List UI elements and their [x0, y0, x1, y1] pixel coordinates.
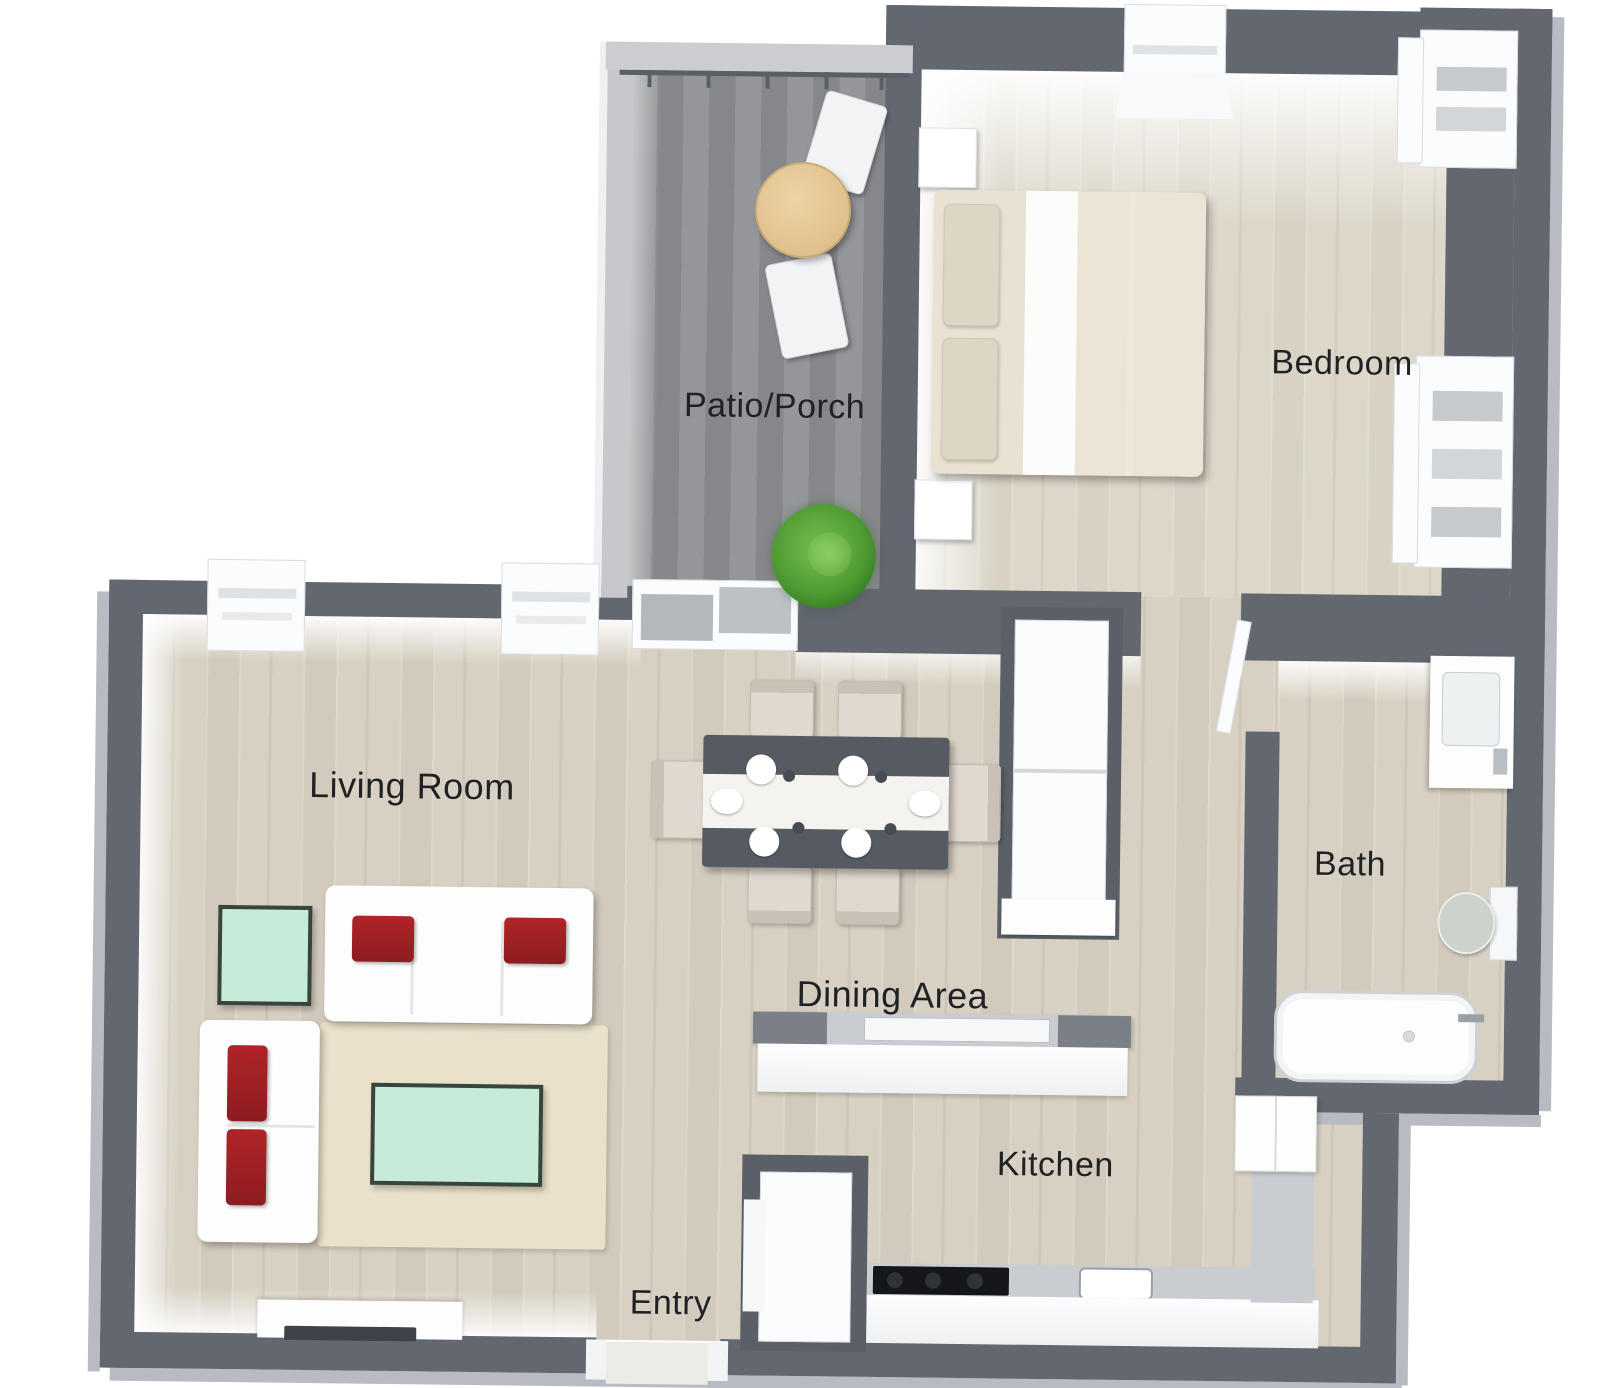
nightstand-top [918, 127, 977, 188]
nightstand-bottom [914, 479, 973, 540]
sofa-cushion-seam [227, 1124, 315, 1128]
cooktop [873, 1266, 1009, 1296]
room-label-dining: Dining Area [796, 973, 988, 1017]
cooktop-burner [887, 1272, 903, 1288]
dining-chair [650, 760, 709, 839]
entry-closet-door [758, 1172, 852, 1343]
bedroom-window-sill [1115, 72, 1234, 119]
kitchen-counter-right [1251, 1171, 1315, 1304]
dining-chair [747, 865, 812, 924]
wall-closet-divider [1444, 168, 1514, 359]
railing-post [706, 71, 710, 88]
cooktop-burner [967, 1273, 983, 1289]
bed [931, 190, 1206, 477]
closet-organizer-bottom [1392, 363, 1420, 563]
bath-sink [1441, 672, 1500, 747]
bathtub-drain [1403, 1030, 1415, 1042]
bed-pillow [941, 338, 998, 461]
fridge-door-seam [1274, 1097, 1277, 1171]
bed-duvet [1075, 191, 1206, 477]
railing-post [647, 70, 651, 87]
wall-bath-north [1241, 593, 1546, 664]
kitchen-bar-cap-left [753, 1011, 827, 1044]
bath-faucet [1493, 748, 1507, 774]
kitchen-bar-cap-right [1058, 1015, 1131, 1048]
kitchen-sink [1079, 1267, 1153, 1300]
bath-vanity [1429, 656, 1515, 789]
plate [746, 754, 776, 784]
room-label-living: Living Room [309, 764, 515, 809]
dining-chair [835, 866, 900, 925]
room-label-entry: Entry [629, 1283, 711, 1323]
red-pillow [504, 917, 567, 964]
cooktop-burner [925, 1273, 941, 1289]
window-sill-line [1133, 45, 1217, 55]
patio-railing-bar [606, 42, 913, 74]
closet-shelf [1436, 107, 1506, 132]
hall-closet-door [1011, 620, 1109, 927]
dining-chair [942, 764, 1001, 843]
dining-chair [838, 680, 903, 739]
room-label-kitchen: Kitchen [997, 1145, 1114, 1185]
kitchen-bar-tray [864, 1017, 1050, 1043]
side-table [217, 905, 312, 1006]
living-window-left [207, 559, 306, 652]
serving-plate [909, 790, 941, 816]
kitchen-counter-front [866, 1295, 1319, 1349]
plate [841, 828, 871, 858]
bedroom-closet-alcove-bottom [1414, 356, 1515, 569]
living-west-wall-face [134, 614, 185, 1332]
entry-closet-jamb [743, 1199, 766, 1311]
closet-shelf [1432, 449, 1502, 480]
window-sill-line [512, 591, 590, 602]
cup [783, 770, 795, 782]
dining-table [702, 735, 950, 870]
bed-sheet [1023, 191, 1078, 476]
dining-chair [750, 679, 815, 738]
window-sill-line [516, 616, 586, 625]
sliding-door-glass [719, 587, 792, 634]
bed-pillow [943, 204, 1000, 327]
entry-threshold [606, 1342, 709, 1385]
red-pillow [226, 1129, 267, 1205]
bathtub [1273, 990, 1478, 1084]
window-sill-line [222, 612, 292, 621]
patio-sliding-door [632, 579, 799, 651]
fridge [1234, 1095, 1317, 1172]
sliding-door-glass [641, 594, 714, 641]
cup [884, 823, 896, 835]
cup [792, 822, 804, 834]
closet-shelf [1436, 67, 1506, 92]
closet-organizer-top [1397, 37, 1425, 163]
closet-shelf [1432, 391, 1502, 422]
wall-kitchen-east [1360, 1113, 1399, 1383]
closet-shelf [1431, 507, 1501, 538]
red-pillow [227, 1045, 268, 1121]
floorplan-image: Patio/Porch Bedroom Living Room Dining A… [0, 0, 1600, 1388]
red-pillow [352, 916, 415, 963]
coffee-table [370, 1083, 543, 1187]
wall-closet-stub [1441, 564, 1509, 599]
room-label-bath: Bath [1314, 845, 1386, 885]
shower-handle [1458, 1014, 1484, 1022]
railing-post [765, 72, 769, 89]
room-label-bedroom: Bedroom [1271, 343, 1413, 384]
tv [284, 1326, 416, 1342]
floorplan-3d: Patio/Porch Bedroom Living Room Dining A… [0, 0, 1600, 1388]
room-label-patio: Patio/Porch [684, 386, 866, 427]
living-window-right [501, 562, 600, 655]
serving-plate [711, 788, 743, 814]
hall-closet-face [1001, 898, 1115, 935]
railing-post [879, 73, 883, 90]
entry-door-jamb-left [586, 1339, 606, 1379]
entry-door-jamb-right [708, 1341, 728, 1381]
window-sill-line [218, 588, 296, 599]
cup [875, 771, 887, 783]
plate [749, 826, 779, 856]
bedroom-closet-alcove-top [1419, 30, 1519, 169]
kitchen-bar-front [757, 1044, 1128, 1097]
railing-post [824, 72, 828, 89]
closet-door-divider [1014, 769, 1106, 774]
